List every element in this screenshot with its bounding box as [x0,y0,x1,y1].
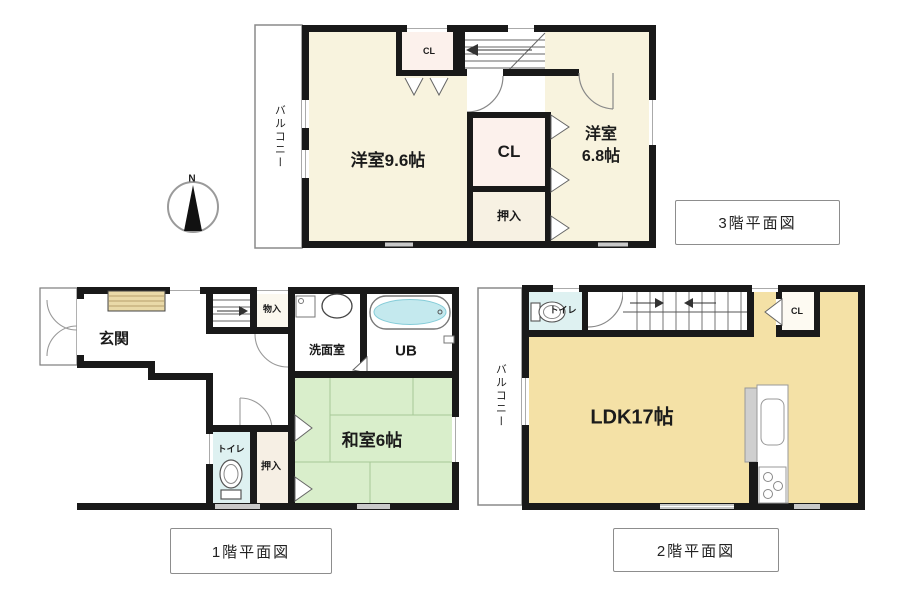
caption-floor1: 1階平面図 [170,528,332,574]
bath-fixture [444,336,454,343]
room-label-balcony-3f: バルコニー [273,105,286,170]
room-label-unit-bath: UB [395,342,417,359]
toilet-icon-1f [220,460,242,499]
caption-floor2-text: 2階平面図 [657,540,735,561]
floor1-plan [40,287,459,510]
sink-basin [322,294,352,318]
room-label-senmenshitsu: 洗面室 [309,344,345,358]
caption-floor1-text: 1階平面図 [212,541,290,562]
room-label-oshiire-3f: 押入 [497,210,521,224]
caption-floor2: 2階平面図 [613,528,779,572]
room-label-bedroom-96: 洋室9.6帖 [351,151,426,171]
compass-north-label: N [188,173,195,185]
room-label-bedroom-68-line2: 6.8帖 [582,148,620,166]
floorplan-drawing [0,0,900,600]
room-label-toilet-2f: トイレ [549,305,576,315]
room-label-closet-mid-3f: CL [498,142,521,162]
room-label-monoire: 物入 [263,304,281,314]
room-label-ldk: LDK17帖 [590,407,673,430]
caption-floor3: 3階平面図 [675,200,840,245]
caption-floor3-text: 3階平面図 [718,212,796,233]
room-label-bedroom-68-line1: 洋室 [585,126,617,144]
kitchen-counter [745,385,788,510]
room-label-genkan: 玄関 [99,330,129,347]
room-label-oshiire-1f: 押入 [261,461,281,473]
bathtub [370,296,450,329]
compass [168,182,218,232]
washing-machine [296,296,315,317]
room-label-closet-2f: CL [791,306,803,316]
room-label-closet-top-3f: CL [423,46,435,56]
stairs-2f [623,292,747,333]
room-label-toilet-1f: トイレ [217,444,244,454]
room-label-washitsu: 和室6帖 [342,431,402,451]
kitchen-sink [761,399,784,445]
shoe-cabinet [108,291,165,311]
room-label-balcony-2f: バルコニー [494,364,507,429]
floorplan-page: 洋室9.6帖 CL 洋室 6.8帖 CL 押入 バルコニー N 玄関 物入 洗面… [0,0,900,600]
floor2-plan [478,285,865,510]
